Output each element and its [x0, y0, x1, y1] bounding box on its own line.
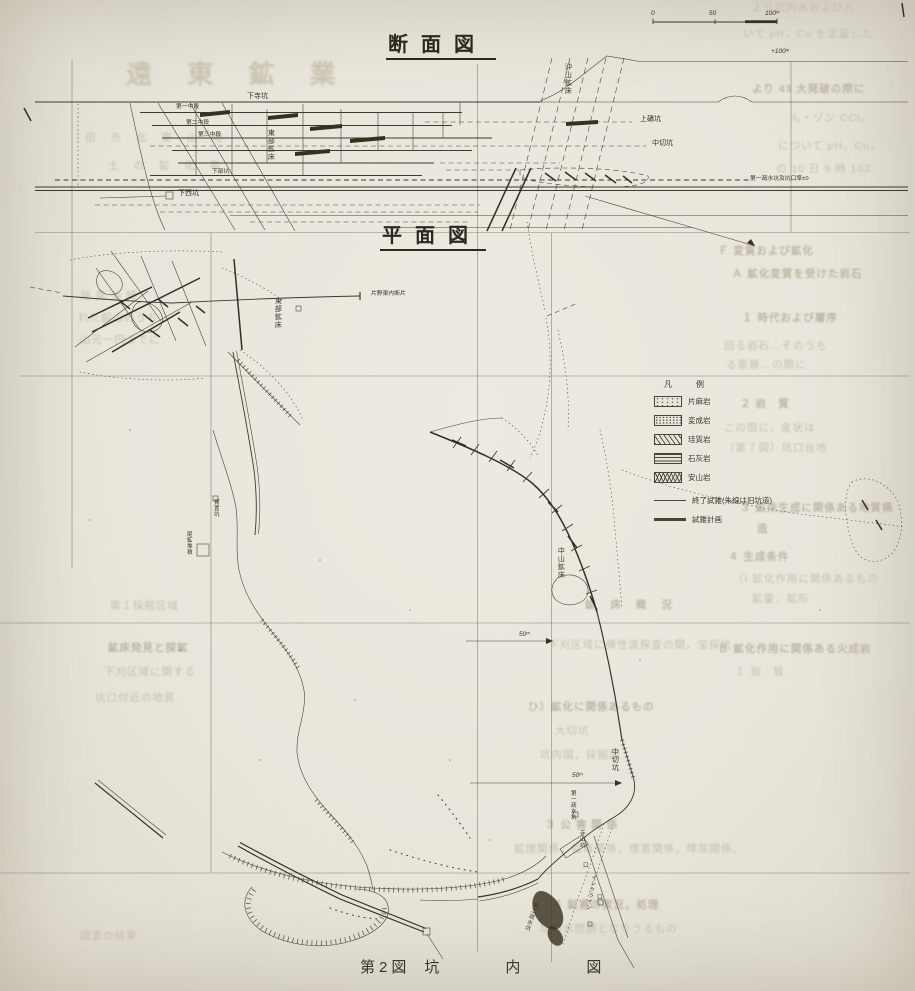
distance-50m-b: 50ᵐ	[572, 773, 582, 780]
scale-tick-50: 50	[709, 11, 716, 18]
survey-grid	[0, 60, 910, 962]
legend-item: 石灰岩	[654, 453, 711, 464]
figure-title: 坑内図	[424, 959, 667, 976]
distance-50m-a: 50ᵐ	[519, 632, 529, 639]
scan-speckles	[89, 419, 820, 840]
legend-swatch-p-horiz	[654, 453, 682, 464]
adit-terayama: 寺山坑	[578, 830, 584, 848]
shaft-shimonishi: 下西坑	[178, 190, 199, 197]
orebody-okiyama: 沖山鉱床	[564, 63, 571, 95]
mine-map-drawing	[0, 0, 915, 991]
legend-label: 安山岩	[688, 472, 711, 483]
legend-item: 試錐計画	[654, 514, 722, 525]
elevation-label: +100ᵐ	[771, 49, 789, 56]
orebody-tobu-section: 東部鉱床	[267, 129, 274, 161]
legend-swatch-p-dots	[654, 396, 682, 407]
fault-katano: 片野東内断片	[371, 291, 406, 297]
scale-bar	[653, 19, 777, 25]
legend-swatch-p-wavy	[654, 472, 682, 483]
legend-item: 終了試錐(朱線は旧坑道)	[654, 495, 772, 506]
orebody-tobu-plan: 東部鉱床	[274, 297, 281, 329]
legend-label: 試錐計画	[692, 514, 722, 525]
lower-adit: 下部坑	[212, 169, 229, 175]
sublevel-3: 第三中段	[198, 132, 221, 138]
portal-mark-a: 口	[597, 895, 603, 901]
level-kamiseki: 上磧坑	[640, 116, 661, 123]
legend-item: 珪質岩	[654, 434, 711, 445]
legend-line-symbol	[654, 518, 686, 521]
sublevel-2: 第二中段	[186, 120, 209, 126]
hosho-adit: 寳置坑	[212, 499, 218, 517]
scanned-report-page: 遠 東 鉱 業田 市 北 東 山 地土 の 鉱 化 帯発 見 当 時れた銅山のう…	[0, 0, 915, 991]
plan-view-drawing	[30, 222, 905, 968]
legend-swatch-p-diag	[654, 434, 682, 445]
scale-tick-0: 0	[651, 11, 655, 18]
level-nakagiri: 中切坑	[652, 140, 673, 147]
adit-shimotera: 下寺坑	[247, 93, 268, 100]
figure-number: 第2図	[360, 959, 410, 976]
legend-label: 変成岩	[688, 415, 711, 426]
legend-swatch-p-dots2	[654, 415, 682, 426]
plan-title-underline	[380, 249, 486, 251]
legend-label: 石灰岩	[688, 453, 711, 464]
legend-line-symbol	[654, 500, 686, 501]
legend-header: 凡 例	[664, 379, 712, 390]
section-title: 断面図	[388, 35, 487, 56]
legend-label: 片麻岩	[688, 396, 711, 407]
orebody-nakayama: 中山鉱床	[557, 547, 564, 579]
portal-mark-b: 口	[583, 863, 589, 869]
tailings-label: 尾鉱堆積	[185, 531, 191, 555]
figure-caption: 第2図坑内図	[360, 956, 667, 977]
plan-title: 平面図	[382, 226, 481, 247]
legend-item: 変成岩	[654, 415, 711, 426]
legend-label: 終了試錐(朱線は旧坑道)	[692, 495, 772, 506]
drainage-adit-1: 第一疏水坑	[569, 790, 575, 820]
datum-label: 第一疏水坑及坑口準±0	[750, 176, 809, 182]
legend-label: 珪質岩	[688, 434, 711, 445]
scale-tick-100: 100ᵐ	[765, 11, 779, 18]
sublevel-1: 第一中段	[176, 104, 199, 110]
section-title-underline	[386, 58, 496, 60]
legend-item: 片麻岩	[654, 396, 711, 407]
legend-item: 安山岩	[654, 472, 711, 483]
adit-nakagiri-plan: 中切坑	[611, 748, 618, 772]
